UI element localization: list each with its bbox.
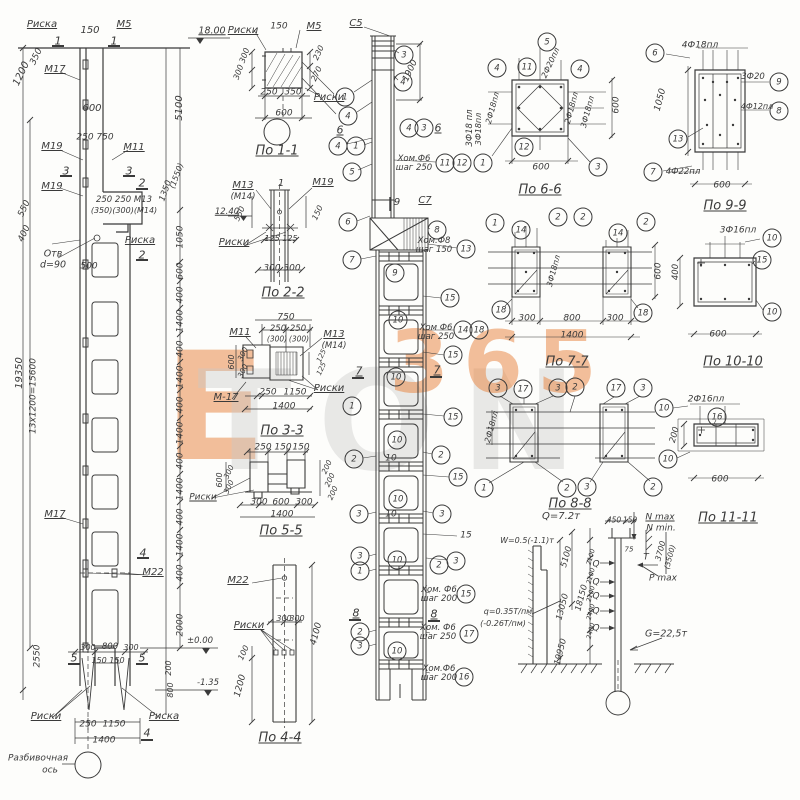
section-11-11 bbox=[673, 404, 764, 481]
blueprint-canvas: E TON 365 bbox=[0, 0, 800, 800]
section-7-7 bbox=[488, 226, 658, 340]
section-1-1 bbox=[249, 30, 336, 145]
section-6-6 bbox=[488, 48, 615, 164]
rebar-cage-elevation bbox=[347, 27, 457, 700]
section-10-10 bbox=[677, 236, 763, 337]
section-8-8 bbox=[486, 396, 655, 483]
column-elevation bbox=[18, 38, 252, 778]
section-5-5 bbox=[212, 448, 320, 517]
section-9-9 bbox=[663, 48, 769, 187]
section-4-4 bbox=[249, 558, 315, 728]
load-scheme bbox=[518, 512, 674, 715]
drawing-linework bbox=[0, 0, 800, 800]
section-2-2 bbox=[244, 184, 312, 288]
section-3-3 bbox=[232, 320, 442, 412]
